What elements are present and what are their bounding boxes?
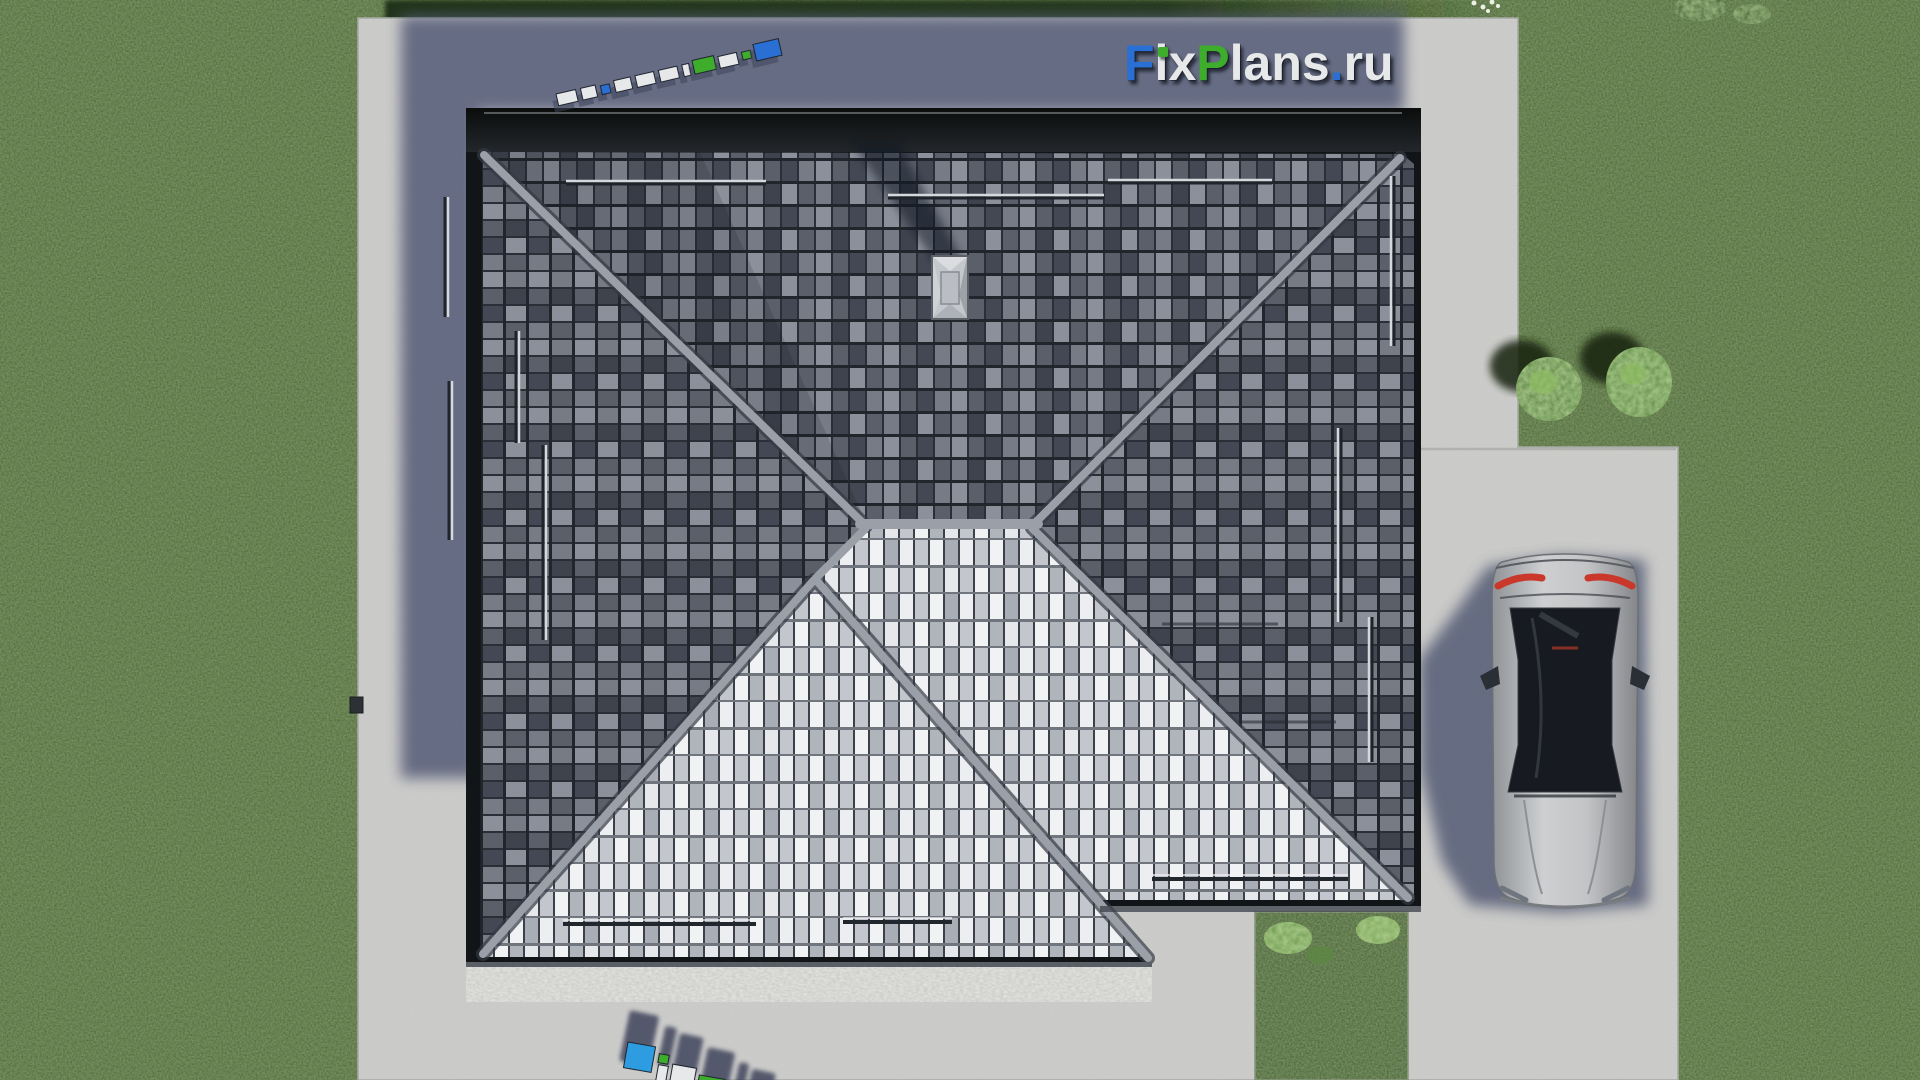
chimney (931, 255, 969, 320)
roof-top-eave-band (466, 108, 1421, 152)
logo-block (600, 84, 611, 95)
logo-block (623, 1042, 655, 1072)
watermark-segment: x (1168, 38, 1196, 88)
garden-bed (1255, 912, 1408, 1080)
watermark-segment: ru (1344, 38, 1394, 88)
site-plan-graphics (0, 0, 1920, 1080)
logo-block (656, 1065, 669, 1080)
eave-shadow-right (1100, 906, 1421, 912)
logo-block (658, 1054, 669, 1065)
watermark-i-dot (1158, 47, 1168, 57)
car (1480, 554, 1650, 908)
aerial-house-render: FixPlans.ru (0, 0, 1920, 1080)
watermark-segment: P (1196, 38, 1229, 88)
house-roof (445, 108, 1421, 1002)
bush-small (1733, 4, 1771, 24)
watermark-segment: F (1124, 38, 1155, 88)
car-glass (1508, 608, 1622, 792)
gravel-strip (466, 962, 1152, 1002)
fixplans-watermark: FixPlans.ru (1124, 38, 1394, 88)
watermark-segment: i (1155, 38, 1169, 88)
watermark-segment: . (1330, 38, 1344, 88)
watermark-segment: lans (1230, 38, 1330, 88)
drain (350, 697, 363, 713)
